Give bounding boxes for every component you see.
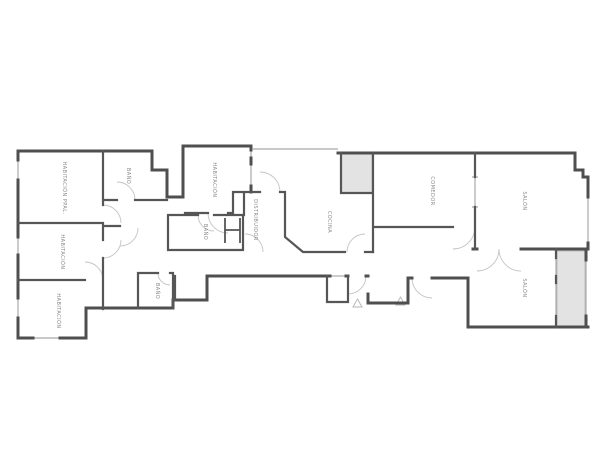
room-label-salon-1: SALÓN bbox=[521, 191, 528, 210]
floor-plan: HABITACIÓN PPAL. BAÑO HABITACIÓN HABITAC… bbox=[0, 0, 600, 450]
room-label-bano-2: BAÑO bbox=[202, 224, 209, 240]
room-label-distribuidor: DISTRIBUIDOR bbox=[252, 199, 258, 241]
patio-lightwell bbox=[341, 154, 372, 193]
terrace bbox=[557, 251, 585, 326]
room-label-bano-3: BAÑO bbox=[154, 283, 161, 299]
room-label-bano-1: BAÑO bbox=[125, 168, 132, 184]
room-label-habitacion-3: HABITACIÓN bbox=[55, 293, 62, 328]
room-label-habitacion-4: HABITACIÓN bbox=[211, 162, 218, 197]
room-label-salon-2: SALÓN bbox=[521, 278, 528, 297]
room-label-habitacion-ppal: HABITACIÓN PPAL. bbox=[61, 161, 68, 214]
floor-plan-canvas: HABITACIÓN PPAL. BAÑO HABITACIÓN HABITAC… bbox=[0, 0, 600, 450]
room-label-cocina: COCINA bbox=[326, 211, 332, 233]
plan-background bbox=[0, 0, 600, 450]
room-label-comedor: COMEDOR bbox=[429, 176, 435, 205]
room-label-habitacion-2: HABITACIÓN bbox=[59, 234, 66, 269]
